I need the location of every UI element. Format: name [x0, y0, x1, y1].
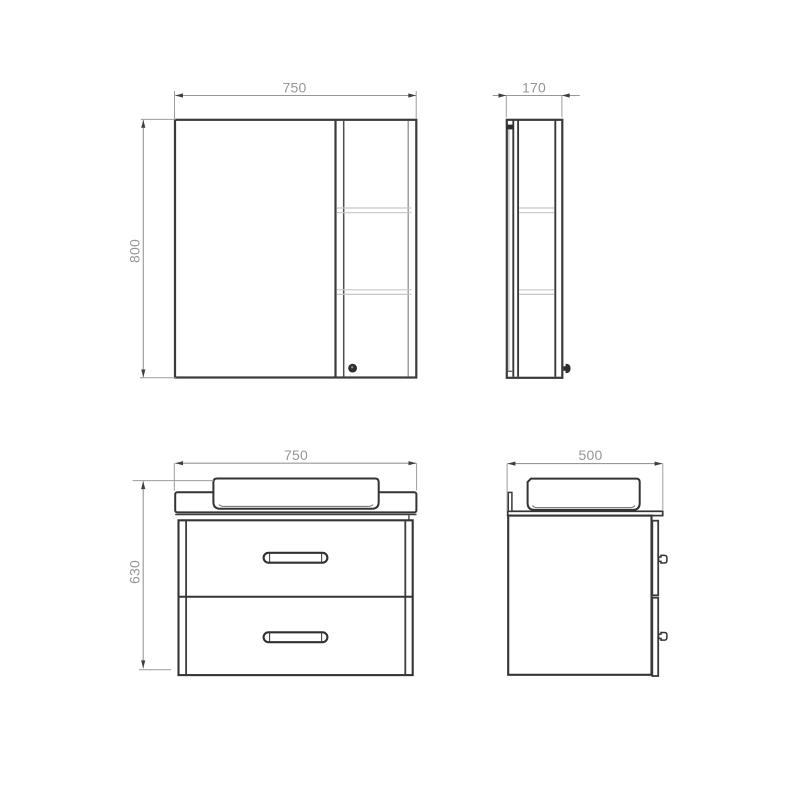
svg-text:500: 500 [579, 447, 603, 463]
svg-text:750: 750 [284, 447, 308, 463]
svg-text:800: 800 [126, 239, 142, 263]
svg-text:750: 750 [283, 80, 307, 96]
svg-text:630: 630 [126, 560, 142, 584]
svg-text:170: 170 [522, 80, 546, 96]
